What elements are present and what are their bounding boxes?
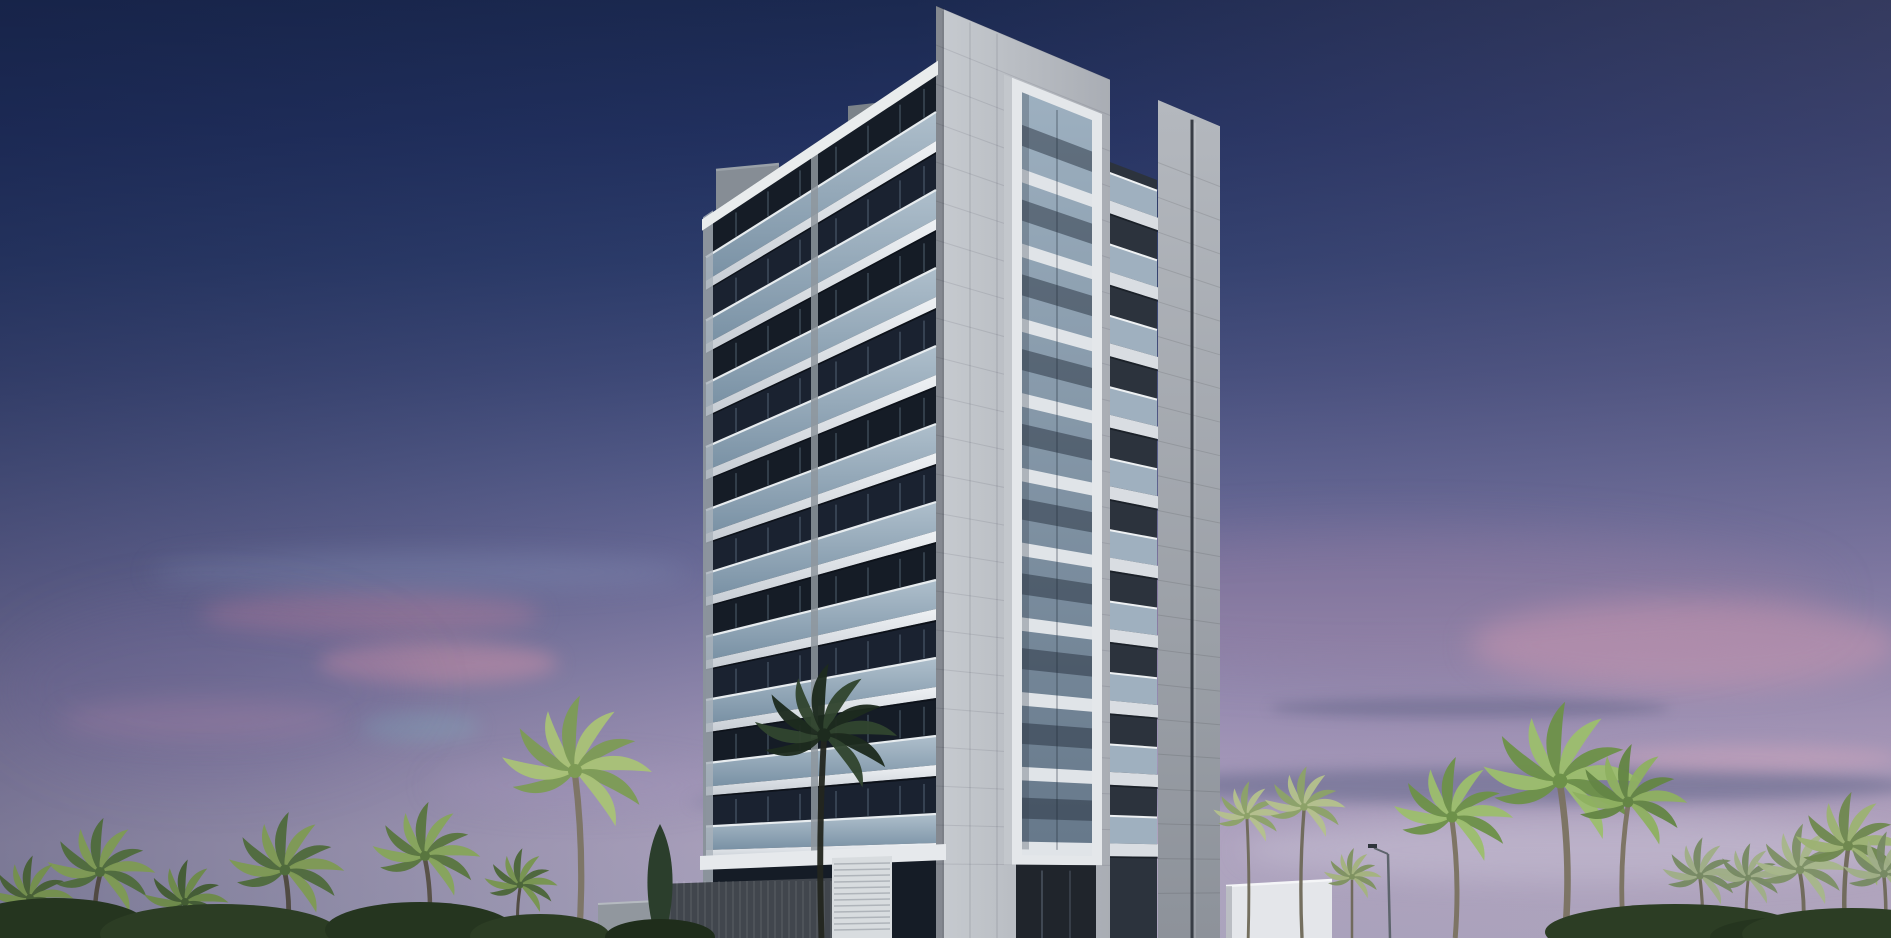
louver-line xyxy=(834,875,890,876)
louver-line xyxy=(834,917,890,918)
louver-box xyxy=(832,856,892,938)
louver-line xyxy=(834,905,890,906)
louver-line xyxy=(834,869,890,870)
palm-tree xyxy=(1482,702,1641,938)
facade-left-edge xyxy=(703,210,713,938)
far-side-wall xyxy=(1158,100,1220,938)
right-podium-wall xyxy=(1226,880,1332,938)
palm-crown-center xyxy=(181,898,189,906)
right-wall-side-shade xyxy=(1226,886,1232,938)
palm-crown-center xyxy=(568,764,582,778)
side-balcony-slab xyxy=(1102,843,1158,857)
louver-line xyxy=(834,929,890,930)
palm-crown-center xyxy=(1244,813,1250,819)
palm-trunk xyxy=(1247,819,1249,938)
street-lamp-head xyxy=(1368,844,1377,848)
tower-and-vegetation xyxy=(0,0,1891,938)
palm-crown-center xyxy=(517,882,524,889)
palm-crown-center xyxy=(1843,841,1853,851)
palm-crown-center xyxy=(817,728,830,741)
palm-crown-center xyxy=(1553,774,1568,789)
palm-crown-center xyxy=(1880,870,1888,878)
frame-side-face xyxy=(1004,74,1012,864)
side-balcony-glass xyxy=(1103,744,1157,775)
louver-line xyxy=(834,923,890,924)
frame-inner-shadow xyxy=(1022,92,1029,849)
palm-crown-center xyxy=(1349,874,1355,880)
architectural-rendering xyxy=(0,0,1891,938)
palm-trunk xyxy=(1560,784,1568,938)
louver-line xyxy=(834,911,890,912)
palm-crown-center xyxy=(1696,872,1703,879)
corner-crease xyxy=(936,6,944,938)
facade-divider xyxy=(811,145,818,862)
entrance-glass xyxy=(1016,865,1096,938)
palm-tree xyxy=(1393,757,1513,938)
louver-line xyxy=(834,881,890,882)
louver-line xyxy=(834,893,890,894)
palm-trunk xyxy=(1452,820,1457,938)
palm-crown-center xyxy=(95,867,105,877)
palm-crown-center xyxy=(1796,866,1805,875)
louver-line xyxy=(834,899,890,900)
palm-tree xyxy=(1323,848,1381,938)
palm-trunk xyxy=(575,774,581,938)
palm-crown-center xyxy=(1745,875,1751,881)
street-lamp-arm xyxy=(1374,848,1388,854)
louver-line xyxy=(834,863,890,864)
side-balcony-glass xyxy=(1103,816,1157,845)
street-lamp-pole xyxy=(1388,854,1390,938)
shrub xyxy=(100,904,340,938)
palm-crown-center xyxy=(420,851,430,861)
louver-line xyxy=(834,887,890,888)
palm-crown-center xyxy=(1300,803,1308,811)
palm-crown-center xyxy=(280,865,291,876)
palm-crown-center xyxy=(1623,797,1634,808)
tower xyxy=(702,6,1220,938)
palm-crown-center xyxy=(1446,811,1457,822)
